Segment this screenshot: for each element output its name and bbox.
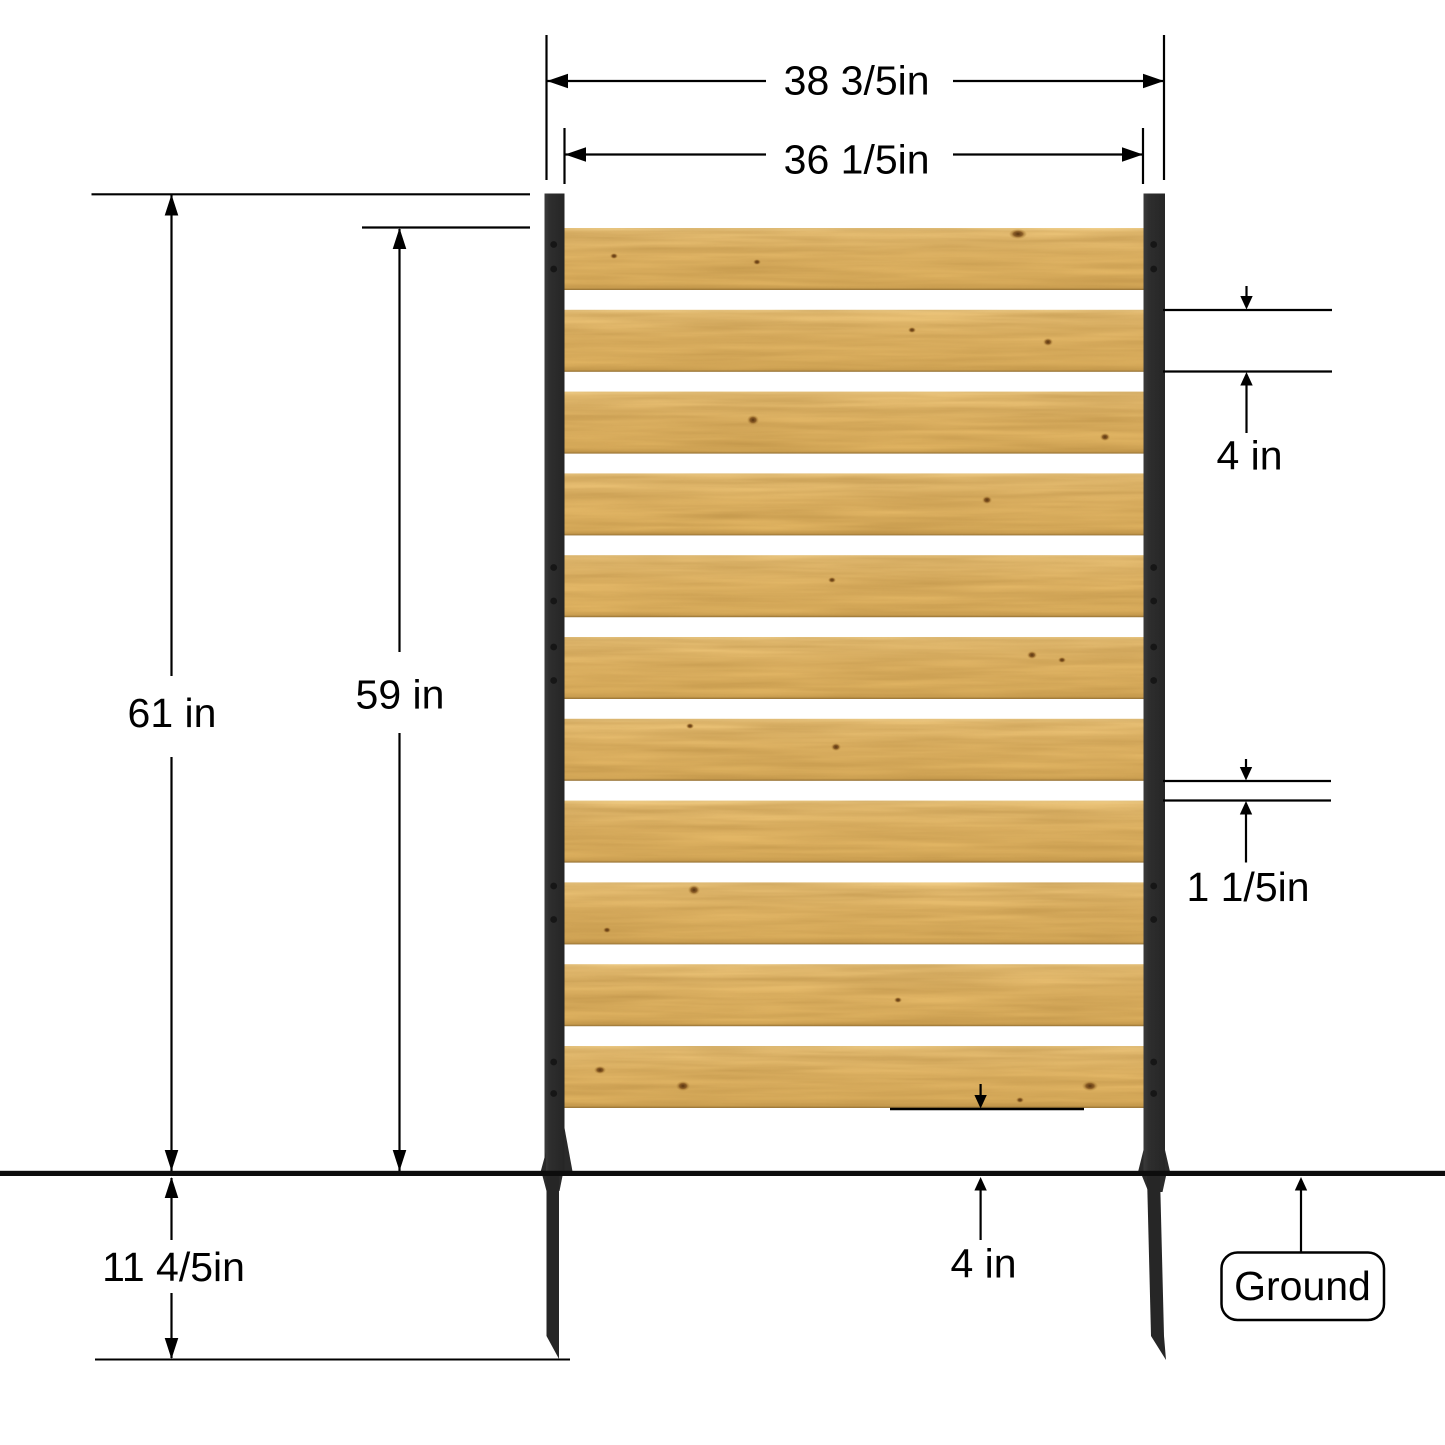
svg-text:4 in: 4 in xyxy=(950,1241,1016,1287)
svg-text:1 1/5in: 1 1/5in xyxy=(1186,864,1309,910)
svg-text:4 in: 4 in xyxy=(1216,433,1282,479)
svg-text:38 3/5in: 38 3/5in xyxy=(784,58,930,104)
svg-text:11 4/5in: 11 4/5in xyxy=(102,1244,245,1290)
svg-text:36 1/5in: 36 1/5in xyxy=(784,137,930,183)
svg-text:61 in: 61 in xyxy=(128,690,217,736)
svg-text:Ground: Ground xyxy=(1234,1263,1371,1309)
svg-text:59 in: 59 in xyxy=(356,672,445,718)
